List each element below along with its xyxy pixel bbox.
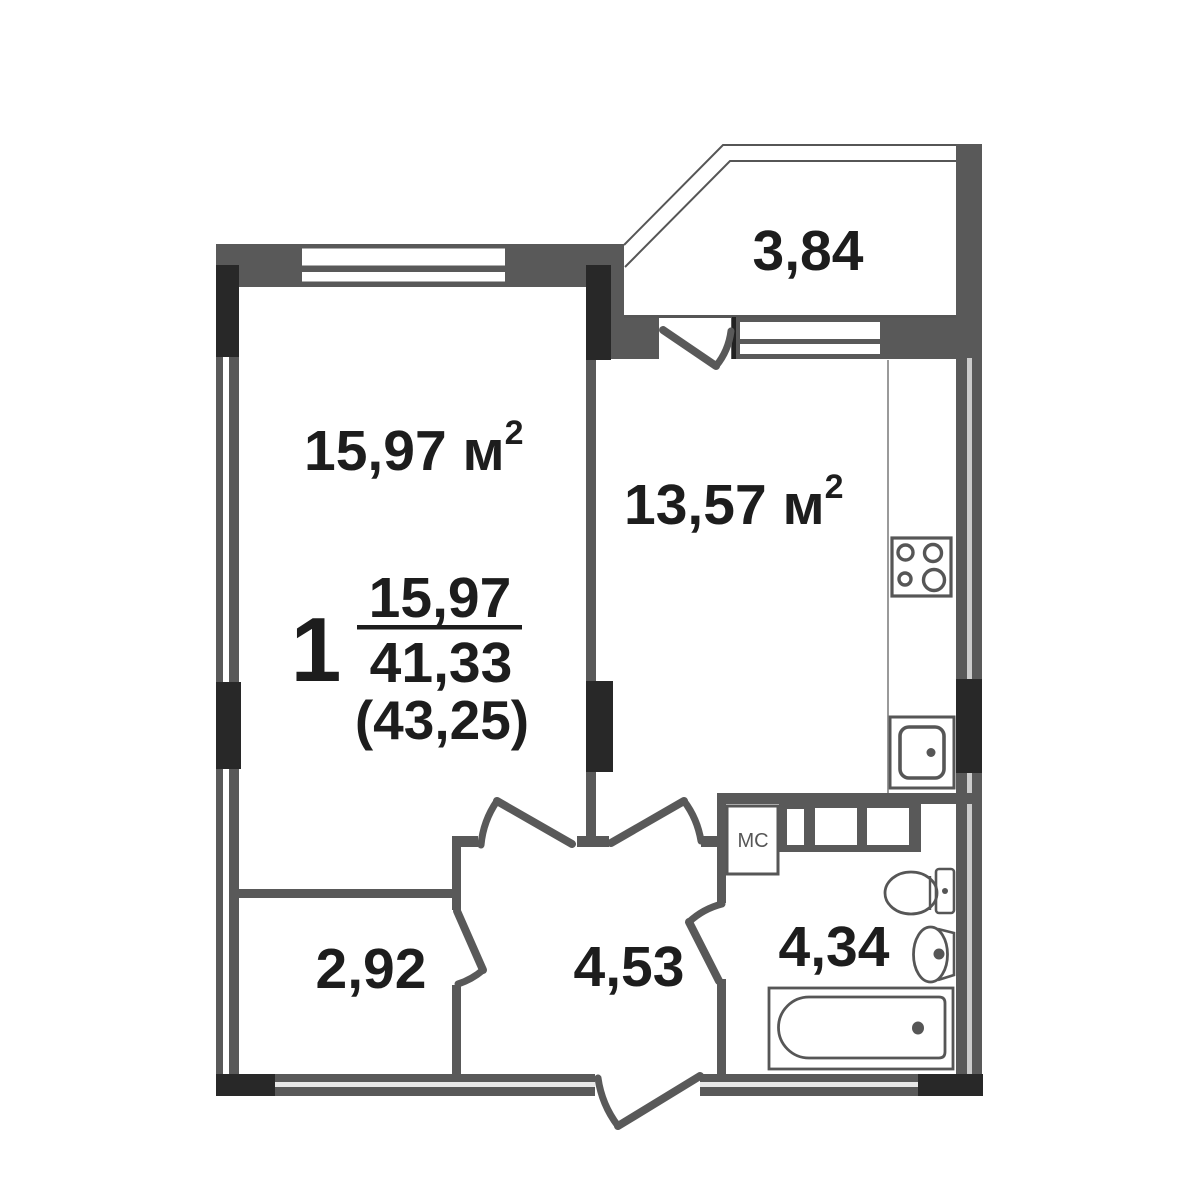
svg-text:МС: МС — [737, 830, 768, 852]
svg-text:41,33: 41,33 — [370, 631, 513, 695]
svg-text:13,57 м2: 13,57 м2 — [624, 468, 844, 537]
svg-text:15,97 м2: 15,97 м2 — [304, 414, 524, 483]
svg-text:15,97: 15,97 — [369, 566, 512, 630]
svg-text:2,92: 2,92 — [316, 937, 427, 1001]
svg-text:3,84: 3,84 — [753, 219, 864, 283]
svg-text:4,34: 4,34 — [779, 915, 890, 979]
svg-text:4,53: 4,53 — [574, 935, 685, 999]
svg-text:(43,25): (43,25) — [355, 689, 529, 751]
svg-text:1: 1 — [291, 600, 342, 701]
